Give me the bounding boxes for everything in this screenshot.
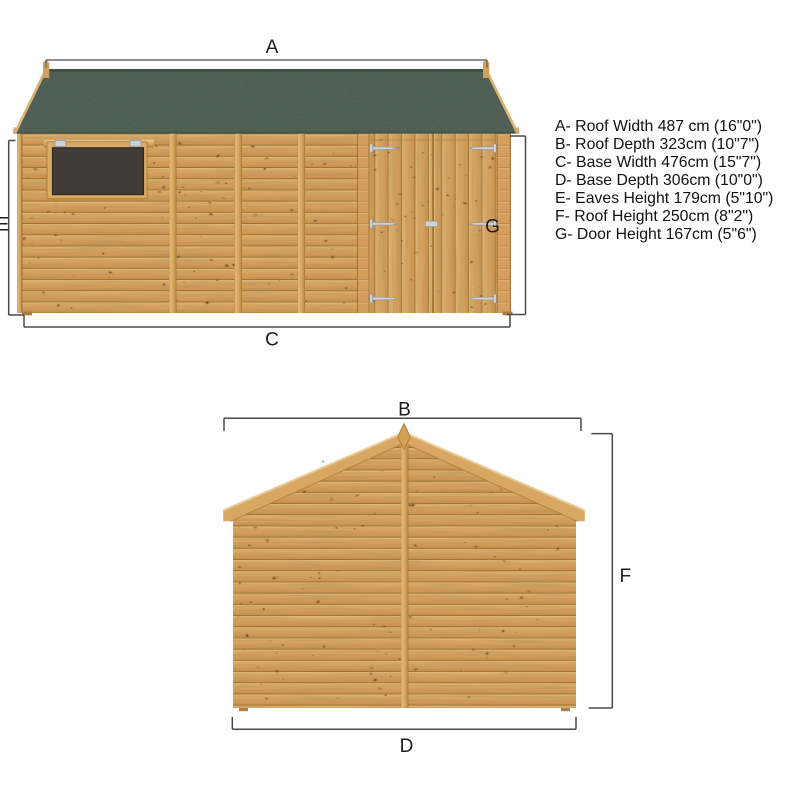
svg-text:C: C: [265, 330, 279, 351]
svg-text:D: D: [400, 736, 414, 757]
svg-text:A- Roof Width 487 cm (16"0"): A- Roof Width 487 cm (16"0"): [555, 118, 762, 135]
svg-text:B- Roof Depth 323cm (10"7"): B- Roof Depth 323cm (10"7"): [555, 136, 759, 153]
svg-text:F- Roof Height 250cm (8"2"): F- Roof Height 250cm (8"2"): [555, 208, 753, 225]
svg-text:E- Eaves Height 179cm (5"10"): E- Eaves Height 179cm (5"10"): [555, 190, 773, 207]
svg-text:B: B: [398, 400, 411, 421]
svg-text:G: G: [485, 217, 500, 238]
svg-text:G- Door Height 167cm (5"6"): G- Door Height 167cm (5"6"): [555, 226, 757, 243]
svg-text:A: A: [266, 37, 279, 58]
svg-text:C- Base Width 476cm (15"7"): C- Base Width 476cm (15"7"): [555, 154, 761, 171]
svg-text:E: E: [0, 215, 9, 236]
svg-text:F: F: [620, 566, 632, 587]
svg-text:D- Base Depth 306cm (10"0"): D- Base Depth 306cm (10"0"): [555, 172, 763, 189]
